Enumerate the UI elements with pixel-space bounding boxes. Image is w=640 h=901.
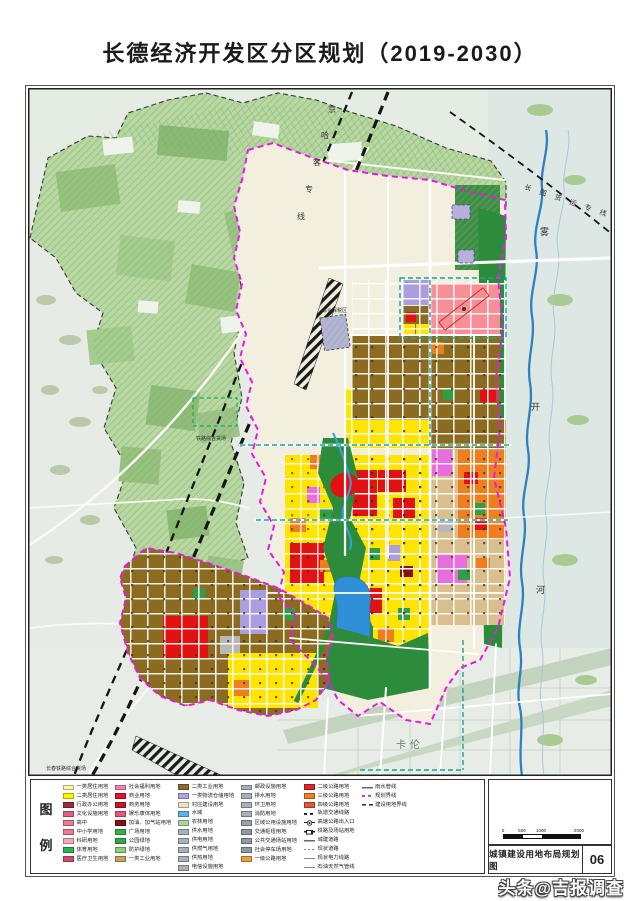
- page-title: 长德经济开发区分区规划（2019-2030）: [0, 36, 640, 68]
- legend-swatch: [241, 829, 252, 835]
- legend-swatch: [241, 802, 252, 808]
- legend-swatch: [304, 838, 315, 844]
- legend-item: 供电用地: [178, 838, 234, 845]
- legend-label: 环卫用地: [255, 803, 276, 808]
- legend-item: 雨水管线: [362, 784, 407, 791]
- legend-item: 水域: [178, 811, 234, 818]
- legend-swatch: [115, 802, 126, 808]
- legend-label: 医疗卫生用地: [77, 857, 109, 862]
- legend-swatch: [241, 847, 252, 853]
- legend-label: 文化设施用地: [77, 812, 109, 817]
- legend-label: 一类物流仓储用地: [192, 794, 234, 799]
- map-label: 雾: [540, 227, 549, 237]
- legend-swatch: [304, 820, 315, 826]
- legend-label: 交通枢纽用地: [255, 830, 287, 835]
- sheet-number: 06: [582, 846, 611, 873]
- legend-item: 消防用地: [241, 811, 297, 818]
- legend-swatch: [362, 793, 373, 799]
- watermark: 头条@吉报调查: [498, 874, 624, 899]
- legend-item: 高速公路出入口: [304, 820, 355, 827]
- compass-scale-box: 0 500 1000 2000: [488, 779, 612, 845]
- legend-swatch: [178, 784, 189, 790]
- legend-label: 电信设施用地: [192, 865, 224, 870]
- legend-item: 城建道路: [304, 838, 355, 845]
- legend-label: 商业用地: [129, 794, 150, 799]
- scale-label: 1000: [536, 828, 546, 833]
- legend-label: 一类工业用地: [129, 857, 161, 862]
- legend-label: 加油、加气站用地: [129, 821, 171, 826]
- legend-swatch: [63, 856, 74, 862]
- legend-column: 一类居住用地二类居住用地行政办公用地文化设施用地高中中小学用地科研用地体育用地医…: [63, 784, 108, 871]
- scale-label: 0: [502, 828, 505, 833]
- legend-item: 体育用地: [63, 847, 108, 854]
- legend-item: 供水用地: [178, 829, 234, 836]
- legend-label: 雨水管线: [375, 785, 396, 790]
- legend-swatch: [115, 820, 126, 826]
- legend-swatch: [63, 811, 74, 817]
- legend-heading-char: 图: [39, 799, 52, 818]
- legend-column: 社会福利用地商业用地商务用地娱乐康体用地加油、加气站用地广场用地公园绿地防护绿地…: [115, 784, 171, 871]
- legend-label: 娱乐康体用地: [129, 812, 161, 817]
- legend-column: 邮政设施用地排水用地环卫用地消防用地区域公用设施用地交通枢纽用地公共交通场站用地…: [241, 784, 297, 871]
- legend-swatch: [178, 820, 189, 826]
- bonded-zone: [320, 314, 350, 350]
- legend-swatch: [304, 856, 315, 862]
- legend-label: 公共交通场站用地: [255, 839, 297, 844]
- legend-swatch: [304, 802, 315, 808]
- legend-swatch: [63, 802, 74, 808]
- scale-bar: 0 500 1000 2000: [498, 828, 602, 839]
- legend-label: 现状道路: [317, 847, 338, 852]
- legend-swatch: [178, 802, 189, 808]
- legend-swatch: [304, 865, 315, 871]
- legend-item: 社会福利用地: [115, 784, 171, 791]
- map-label: 卡伦: [396, 738, 424, 751]
- legend-item: 铁路及场站用地: [304, 829, 355, 836]
- legend-swatch: [63, 838, 74, 844]
- scale-label: 2000: [574, 828, 584, 833]
- legend-item: 农林用地: [178, 820, 234, 827]
- legend-item: 二类居住用地: [63, 793, 108, 800]
- map-label: 开: [531, 402, 540, 412]
- legend-swatch: [241, 856, 252, 862]
- legend-swatch: [178, 856, 189, 862]
- legend-column: 雨水管线规划界线建设用地界线: [362, 784, 407, 871]
- legend: 图 例 一类居住用地二类居住用地行政办公用地文化设施用地高中中小学用地科研用地体…: [30, 779, 485, 874]
- legend-swatch: [362, 785, 373, 791]
- legend-item: 行政办公用地: [63, 802, 108, 809]
- legend-heading: 图 例: [31, 780, 61, 873]
- map-label: 综合保税区: [322, 307, 347, 314]
- legend-swatch: [178, 793, 189, 799]
- legend-item: 建设用地界线: [362, 802, 407, 809]
- legend-item: 一类工业用地: [115, 856, 171, 863]
- legend-swatch: [178, 838, 189, 844]
- legend-label: 科研用地: [77, 839, 98, 844]
- map-title-block: 城镇建设用地布局规划图 06: [488, 845, 612, 874]
- legend-label: 二级公路用地: [317, 785, 349, 790]
- map-label: 长春铁路综合货场: [46, 765, 86, 772]
- legend-swatch: [63, 793, 74, 799]
- legend-label: 城建道路: [317, 838, 338, 843]
- legend-label: 区域公用设施用地: [255, 821, 297, 826]
- legend-swatch: [115, 785, 126, 791]
- legend-heading-char: 例: [39, 835, 52, 854]
- legend-item: 环卫用地: [241, 802, 297, 809]
- legend-swatch: [63, 829, 74, 835]
- legend-swatch: [304, 829, 315, 835]
- legend-label: 公园绿地: [129, 839, 150, 844]
- legend-label: 二类工业用地: [192, 785, 224, 790]
- legend-item: 加油、加气站用地: [115, 820, 171, 827]
- map-label: 河: [536, 584, 545, 595]
- legend-item: 公共交通场站用地: [241, 838, 297, 845]
- legend-label: 水域: [192, 811, 203, 816]
- legend-item: 娱乐康体用地: [115, 811, 171, 818]
- legend-label: 社会停车场用地: [255, 848, 292, 853]
- legend-item: 一级公路用地: [241, 856, 297, 863]
- legend-swatch: [115, 838, 126, 844]
- legend-item: 村庄建设用地: [178, 802, 234, 809]
- legend-label: 行政办公用地: [77, 803, 109, 808]
- legend-label: 高中: [77, 821, 88, 826]
- legend-label: 商务用地: [129, 803, 150, 808]
- legend-item: 社会停车场用地: [241, 847, 297, 854]
- legend-item: 规划界线: [362, 793, 407, 800]
- legend-label: 排水用地: [255, 794, 276, 799]
- map-label: 铁路综合货场: [196, 435, 226, 442]
- legend-item: 供燃气用地: [178, 847, 234, 854]
- legend-item: 邮政设施用地: [241, 784, 297, 791]
- legend-swatch: [241, 838, 252, 844]
- legend-label: 邮政设施用地: [255, 785, 287, 790]
- legend-item: 三级公路用地: [304, 793, 355, 800]
- sheet-name: 城镇建设用地布局规划图: [489, 846, 582, 873]
- legend-item: 区域公用设施用地: [241, 820, 297, 827]
- legend-item: 交通枢纽用地: [241, 829, 297, 836]
- legend-swatch: [304, 847, 315, 853]
- planning-map: 京哈客专线长图货运专线雾开河卡伦综合保税区铁路综合货场长春铁路综合货场: [28, 88, 612, 776]
- legend-swatch: [115, 847, 126, 853]
- legend-label: 供水用地: [192, 829, 213, 834]
- legend-label: 消防用地: [255, 812, 276, 817]
- legend-item: 文化设施用地: [63, 811, 108, 818]
- legend-item: 二类工业用地: [178, 784, 234, 791]
- legend-item: 电信设施用地: [178, 864, 234, 871]
- legend-swatch: [178, 829, 189, 835]
- map-label: 专: [305, 184, 313, 194]
- legend-label: 现状电力线路: [317, 856, 349, 861]
- map-label: 哈: [321, 130, 329, 140]
- legend-label: 一类居住用地: [77, 785, 109, 790]
- legend-label: 二类居住用地: [77, 794, 109, 799]
- legend-item: 石油天然气管线: [304, 864, 355, 871]
- legend-swatch: [241, 820, 252, 826]
- legend-item: 商务用地: [115, 802, 171, 809]
- legend-swatch: [362, 802, 373, 808]
- scale-label: 500: [518, 828, 526, 833]
- legend-swatch: [63, 847, 74, 853]
- legend-swatch: [115, 793, 126, 799]
- legend-swatch: [178, 865, 189, 871]
- legend-item: 商业用地: [115, 793, 171, 800]
- legend-item: 医疗卫生用地: [63, 856, 108, 863]
- legend-item: 四级公路用地: [304, 802, 355, 809]
- legend-swatch: [241, 811, 252, 817]
- legend-item: 轨道交通线路: [304, 811, 355, 818]
- legend-item: 供热用地: [178, 856, 234, 863]
- legend-swatch: [115, 811, 126, 817]
- legend-label: 村庄建设用地: [192, 803, 224, 808]
- legend-label: 规划界线: [375, 794, 396, 799]
- map-label: 线: [297, 211, 305, 221]
- legend-label: 社会福利用地: [129, 785, 161, 790]
- legend-item: 科研用地: [63, 838, 108, 845]
- legend-item: 中小学用地: [63, 829, 108, 836]
- legend-label: 供热用地: [192, 856, 213, 861]
- legend-label: 广场用地: [129, 830, 150, 835]
- legend-item: 防护绿地: [115, 847, 171, 854]
- legend-item: 二级公路用地: [304, 784, 355, 791]
- legend-label: 中小学用地: [77, 830, 104, 835]
- legend-label: 供燃气用地: [192, 847, 219, 852]
- legend-swatch: [241, 793, 252, 799]
- legend-swatch: [304, 811, 315, 817]
- legend-label: 建设用地界线: [375, 803, 407, 808]
- legend-swatch: [115, 829, 126, 835]
- legend-swatch: [63, 785, 74, 791]
- legend-label: 体育用地: [77, 848, 98, 853]
- legend-item: 广场用地: [115, 829, 171, 836]
- legend-label: 石油天然气管线: [317, 865, 354, 870]
- legend-label: 一级公路用地: [255, 857, 287, 862]
- legend-item: 高中: [63, 820, 108, 827]
- legend-item: 排水用地: [241, 793, 297, 800]
- legend-column: 二类工业用地一类物流仓储用地村庄建设用地水域农林用地供水用地供电用地供燃气用地供…: [178, 784, 234, 871]
- legend-label: 供电用地: [192, 838, 213, 843]
- legend-item: 现状道路: [304, 847, 355, 854]
- legend-swatch: [304, 784, 315, 790]
- legend-swatch: [241, 785, 252, 791]
- legend-label: 农林用地: [192, 820, 213, 825]
- map-label: 京: [328, 104, 336, 114]
- legend-swatch: [63, 820, 74, 826]
- legend-swatch: [115, 856, 126, 862]
- legend-item: 公园绿地: [115, 838, 171, 845]
- poster-sheet: 长德经济开发区分区规划（2019-2030）: [0, 0, 640, 901]
- legend-item: 一类居住用地: [63, 784, 108, 791]
- legend-label: 铁路及场站用地: [317, 829, 354, 834]
- legend-swatch: [304, 793, 315, 799]
- map-label: 客: [313, 157, 321, 167]
- legend-label: 三级公路用地: [317, 794, 349, 799]
- legend-label: 轨道交通线路: [317, 811, 349, 816]
- legend-label: 四级公路用地: [317, 803, 349, 808]
- legend-label: 高速公路出入口: [317, 820, 354, 825]
- legend-swatch: [178, 811, 189, 817]
- legend-column: 二级公路用地三级公路用地四级公路用地轨道交通线路高速公路出入口铁路及场站用地城建…: [304, 784, 355, 871]
- legend-item: 一类物流仓储用地: [178, 793, 234, 800]
- legend-item: 现状电力线路: [304, 856, 355, 863]
- legend-label: 防护绿地: [129, 848, 150, 853]
- legend-swatch: [178, 847, 189, 853]
